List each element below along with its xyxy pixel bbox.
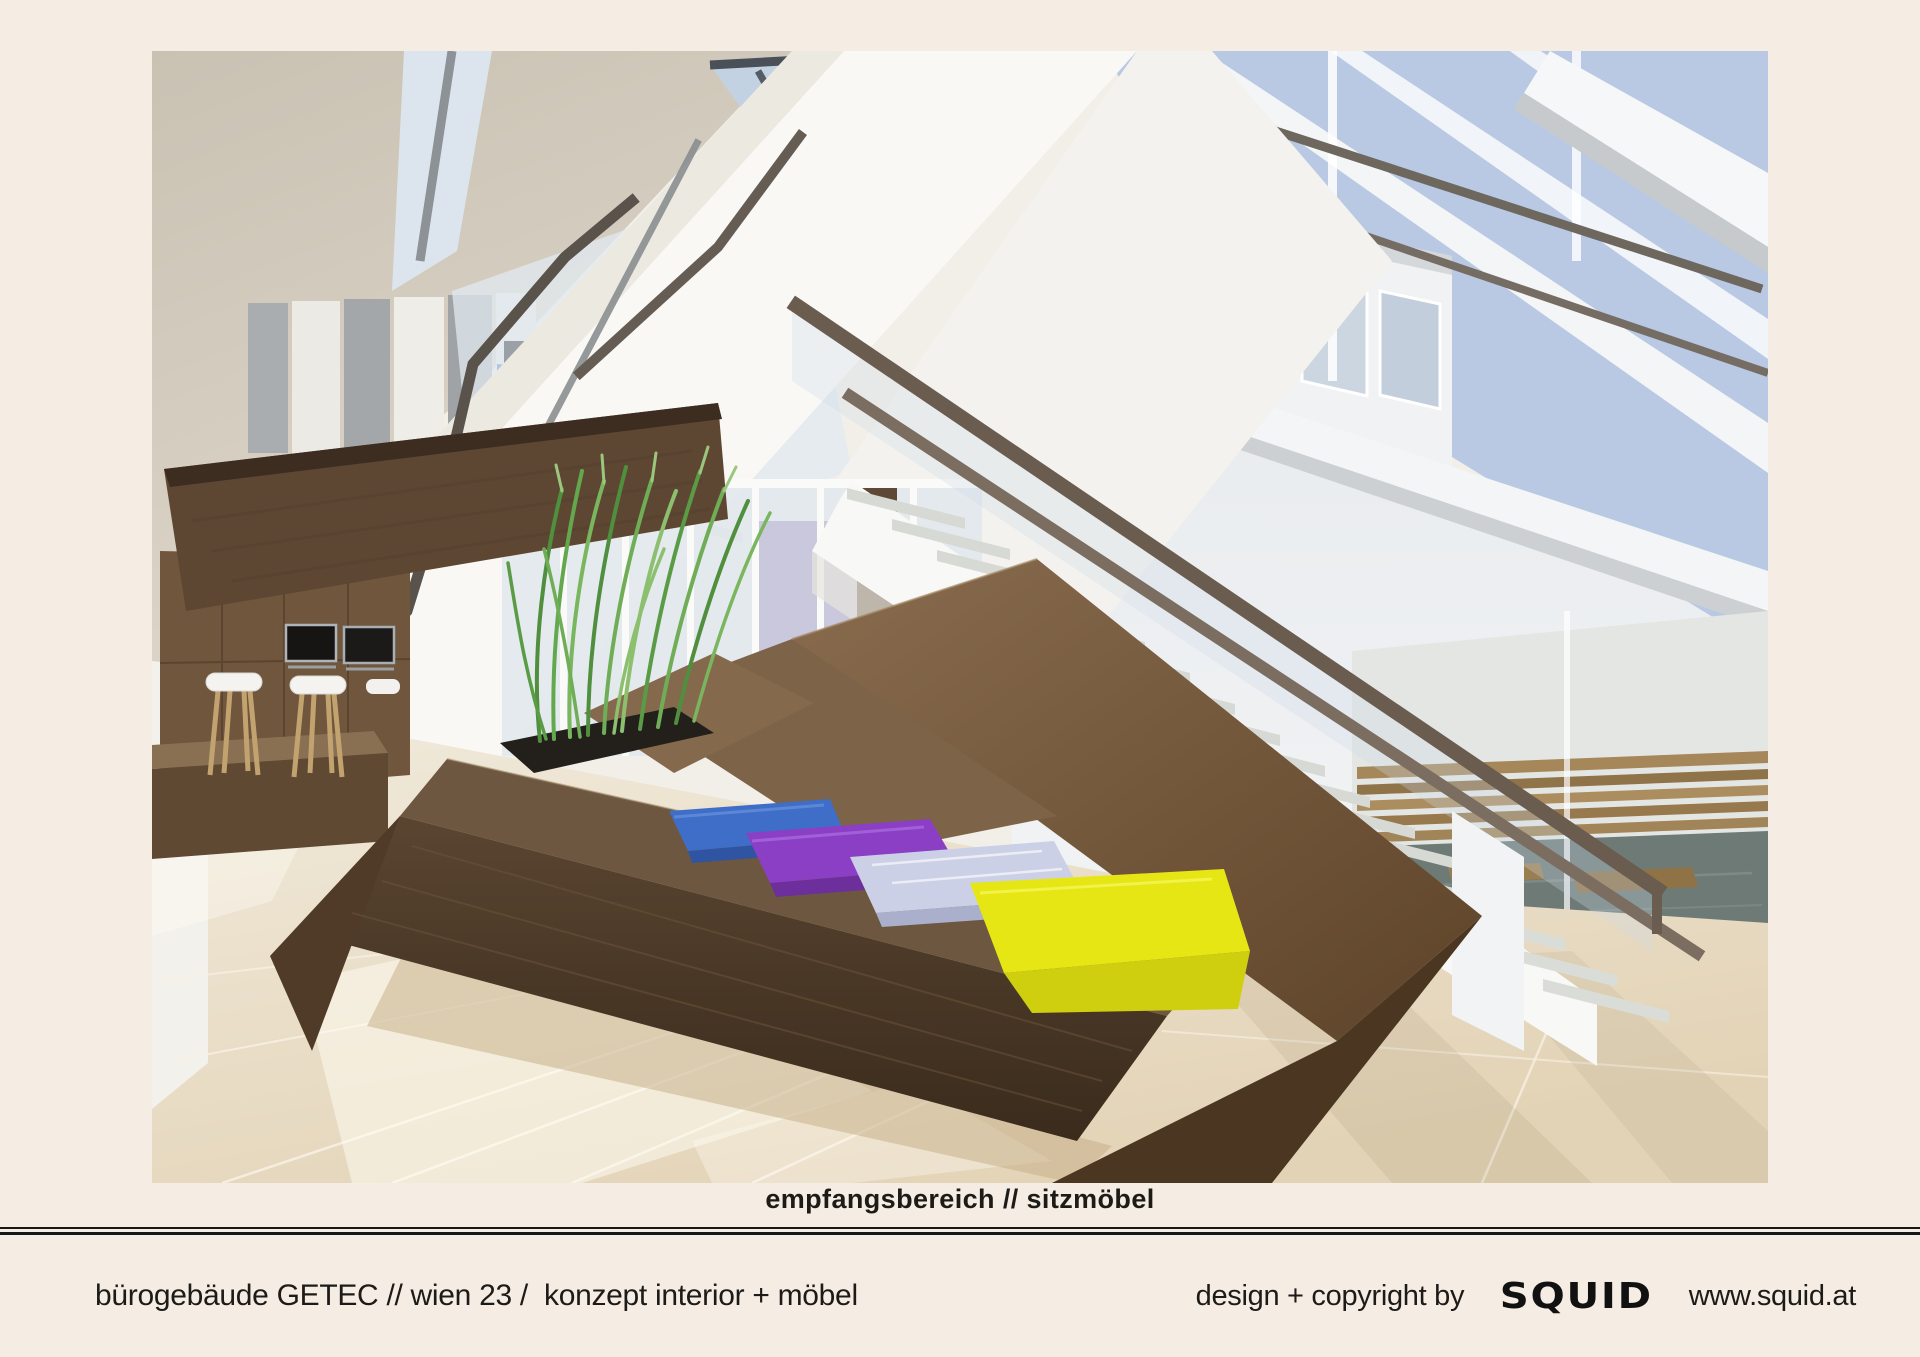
counter-front	[152, 753, 388, 859]
interior-rendering	[152, 51, 1768, 1183]
footer-divider	[0, 1227, 1920, 1235]
credits: design + copyright by SQUID www.squid.at	[1196, 1276, 1856, 1317]
divider-line-top	[0, 1227, 1920, 1229]
squid-logo: SQUID	[1500, 1276, 1653, 1317]
rendering-canvas	[152, 51, 1768, 1183]
presentation-page: empfangsbereich // sitzmöbel bürogebäude…	[0, 0, 1920, 1357]
footer: bürogebäude GETEC // wien 23 / konzept i…	[0, 1235, 1920, 1357]
credit-text: design + copyright by	[1196, 1280, 1465, 1313]
project-title: bürogebäude GETEC // wien 23 / konzept i…	[95, 1279, 858, 1313]
website-text: www.squid.at	[1689, 1280, 1856, 1313]
bar-stool-partial	[366, 679, 400, 694]
image-caption: empfangsbereich // sitzmöbel	[0, 1184, 1920, 1215]
